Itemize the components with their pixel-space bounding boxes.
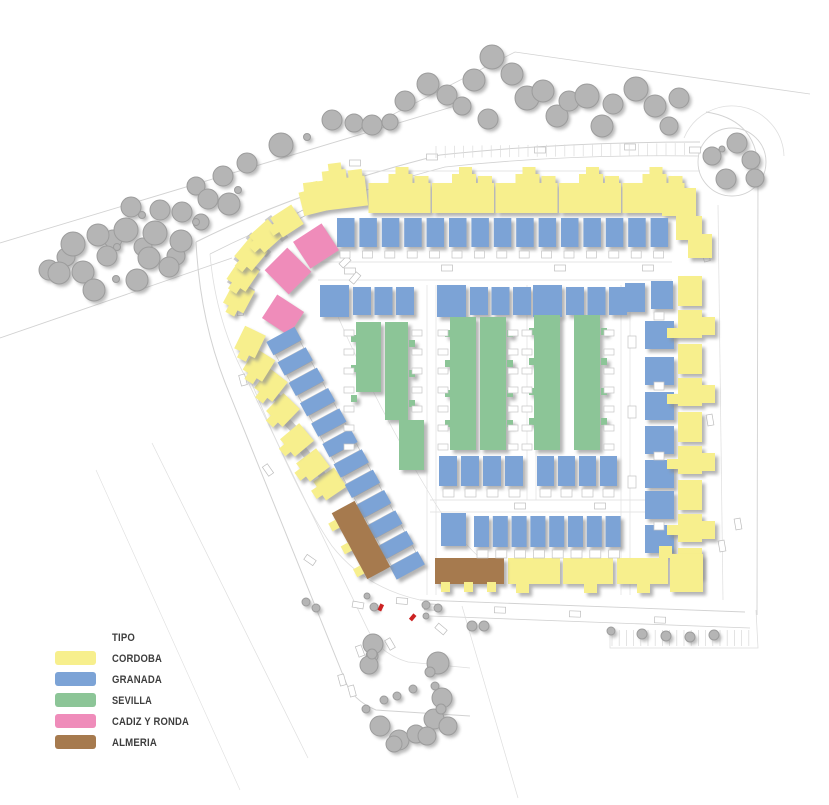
svg-text:SEVILLA: SEVILLA — [112, 695, 152, 707]
svg-text:CORDOBA: CORDOBA — [112, 653, 162, 665]
svg-text:GRANADA: GRANADA — [112, 674, 162, 686]
svg-text:TIPO: TIPO — [112, 632, 135, 644]
svg-text:CADIZ Y RONDA: CADIZ Y RONDA — [112, 716, 189, 728]
svg-text:ALMERIA: ALMERIA — [112, 737, 157, 749]
